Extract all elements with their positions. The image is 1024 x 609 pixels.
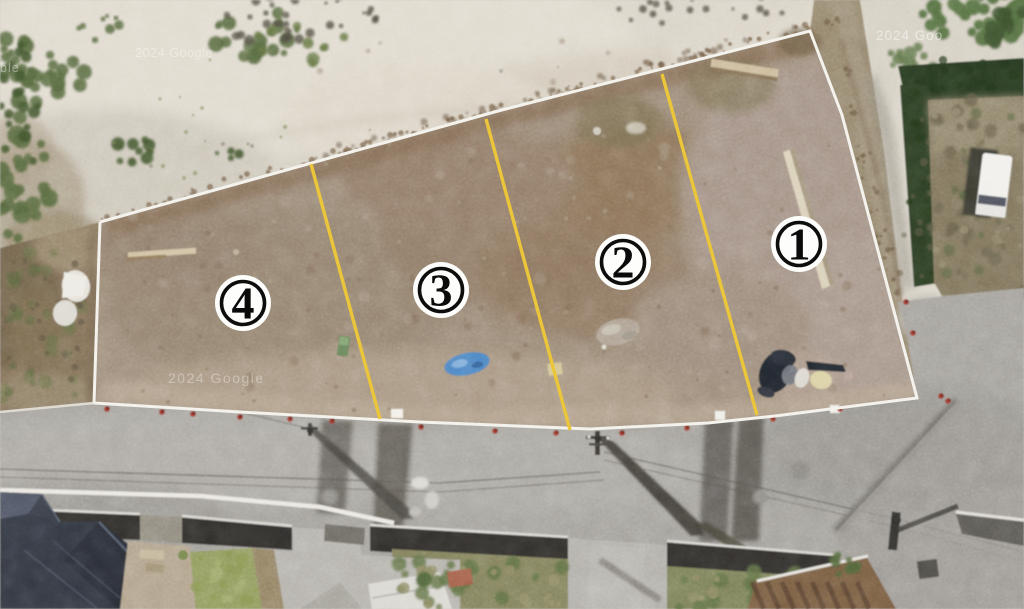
svg-text:2024 Google: 2024 Google bbox=[168, 370, 265, 386]
svg-text:2024 Google: 2024 Google bbox=[135, 45, 213, 60]
svg-text:4: 4 bbox=[232, 278, 255, 329]
svg-text:1: 1 bbox=[788, 219, 811, 270]
svg-text:ble: ble bbox=[0, 61, 20, 75]
svg-text:2: 2 bbox=[612, 237, 635, 288]
svg-text:2024 Goo: 2024 Goo bbox=[876, 28, 943, 43]
svg-text:3: 3 bbox=[430, 265, 453, 316]
